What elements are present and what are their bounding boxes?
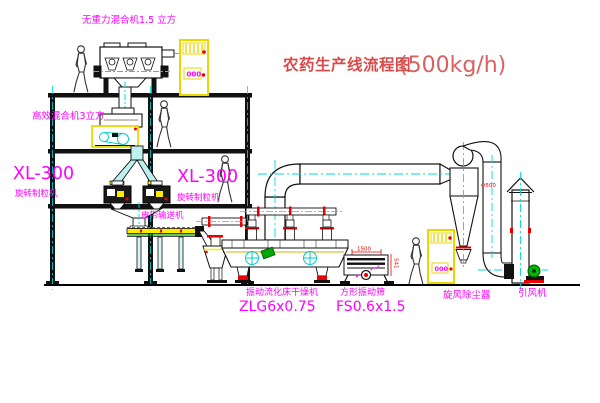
top-mixer-label: 无重力混合机1.5 立方 bbox=[82, 14, 176, 26]
indicator-light bbox=[202, 50, 206, 54]
title-capacity: (500kg/h) bbox=[399, 53, 506, 78]
dryer-name-label: 振动流化床干燥机 bbox=[246, 286, 318, 298]
dim-diameter-label: Φ500 bbox=[481, 183, 496, 189]
gravity-free-mixer bbox=[93, 43, 181, 93]
control-cabinet-top: 000 bbox=[180, 40, 208, 95]
granulator-right-model-label: XL-300 bbox=[177, 167, 238, 187]
indicator-light bbox=[202, 73, 205, 76]
screen-name-label: 方形振动筛 bbox=[340, 286, 385, 298]
diagram-canvas: 000 bbox=[0, 0, 600, 403]
conveyor-legs bbox=[135, 237, 185, 272]
dryer-stubs bbox=[245, 220, 334, 240]
dim-541-label: 541 bbox=[393, 258, 399, 269]
cad-flow-diagram: 000 bbox=[0, 0, 600, 403]
mixer2-label: 高效混合机3立方 bbox=[32, 110, 105, 122]
control-cabinet-ground: 000 bbox=[428, 230, 454, 283]
cabinet1-display: 000 bbox=[187, 71, 202, 79]
page-title: 农药生产线流程图 bbox=[282, 55, 411, 74]
worker-figure-4 bbox=[409, 238, 423, 284]
screen-model-label: FS0.6x1.5 bbox=[336, 299, 406, 315]
granulator-left-model-label: XL-300 bbox=[13, 164, 74, 184]
vibrating-screen: 1500 541 bbox=[340, 247, 399, 285]
indicator-light bbox=[449, 267, 452, 270]
cabinet2-display: 000 bbox=[435, 265, 449, 273]
worker-figure-2 bbox=[157, 101, 171, 147]
cyclone-label: 旋风除尘器 bbox=[443, 289, 491, 301]
granulator-right-name-label: 旋转制粒机 bbox=[177, 192, 220, 203]
dryer-model-label: ZLG6x0.75 bbox=[239, 299, 316, 315]
worker-figure-1 bbox=[74, 46, 88, 92]
dim-1500-label: 1500 bbox=[357, 247, 371, 253]
belt-conveyor-label: 皮带输送机 bbox=[141, 210, 184, 221]
indicator-light bbox=[448, 236, 451, 239]
granulator-left-name-label: 旋转制粒机 bbox=[15, 188, 58, 199]
belt-conveyor bbox=[127, 226, 216, 272]
fan-label: 引风机 bbox=[518, 287, 547, 299]
cyclone-outlet-duct: Φ500 bbox=[463, 142, 548, 277]
